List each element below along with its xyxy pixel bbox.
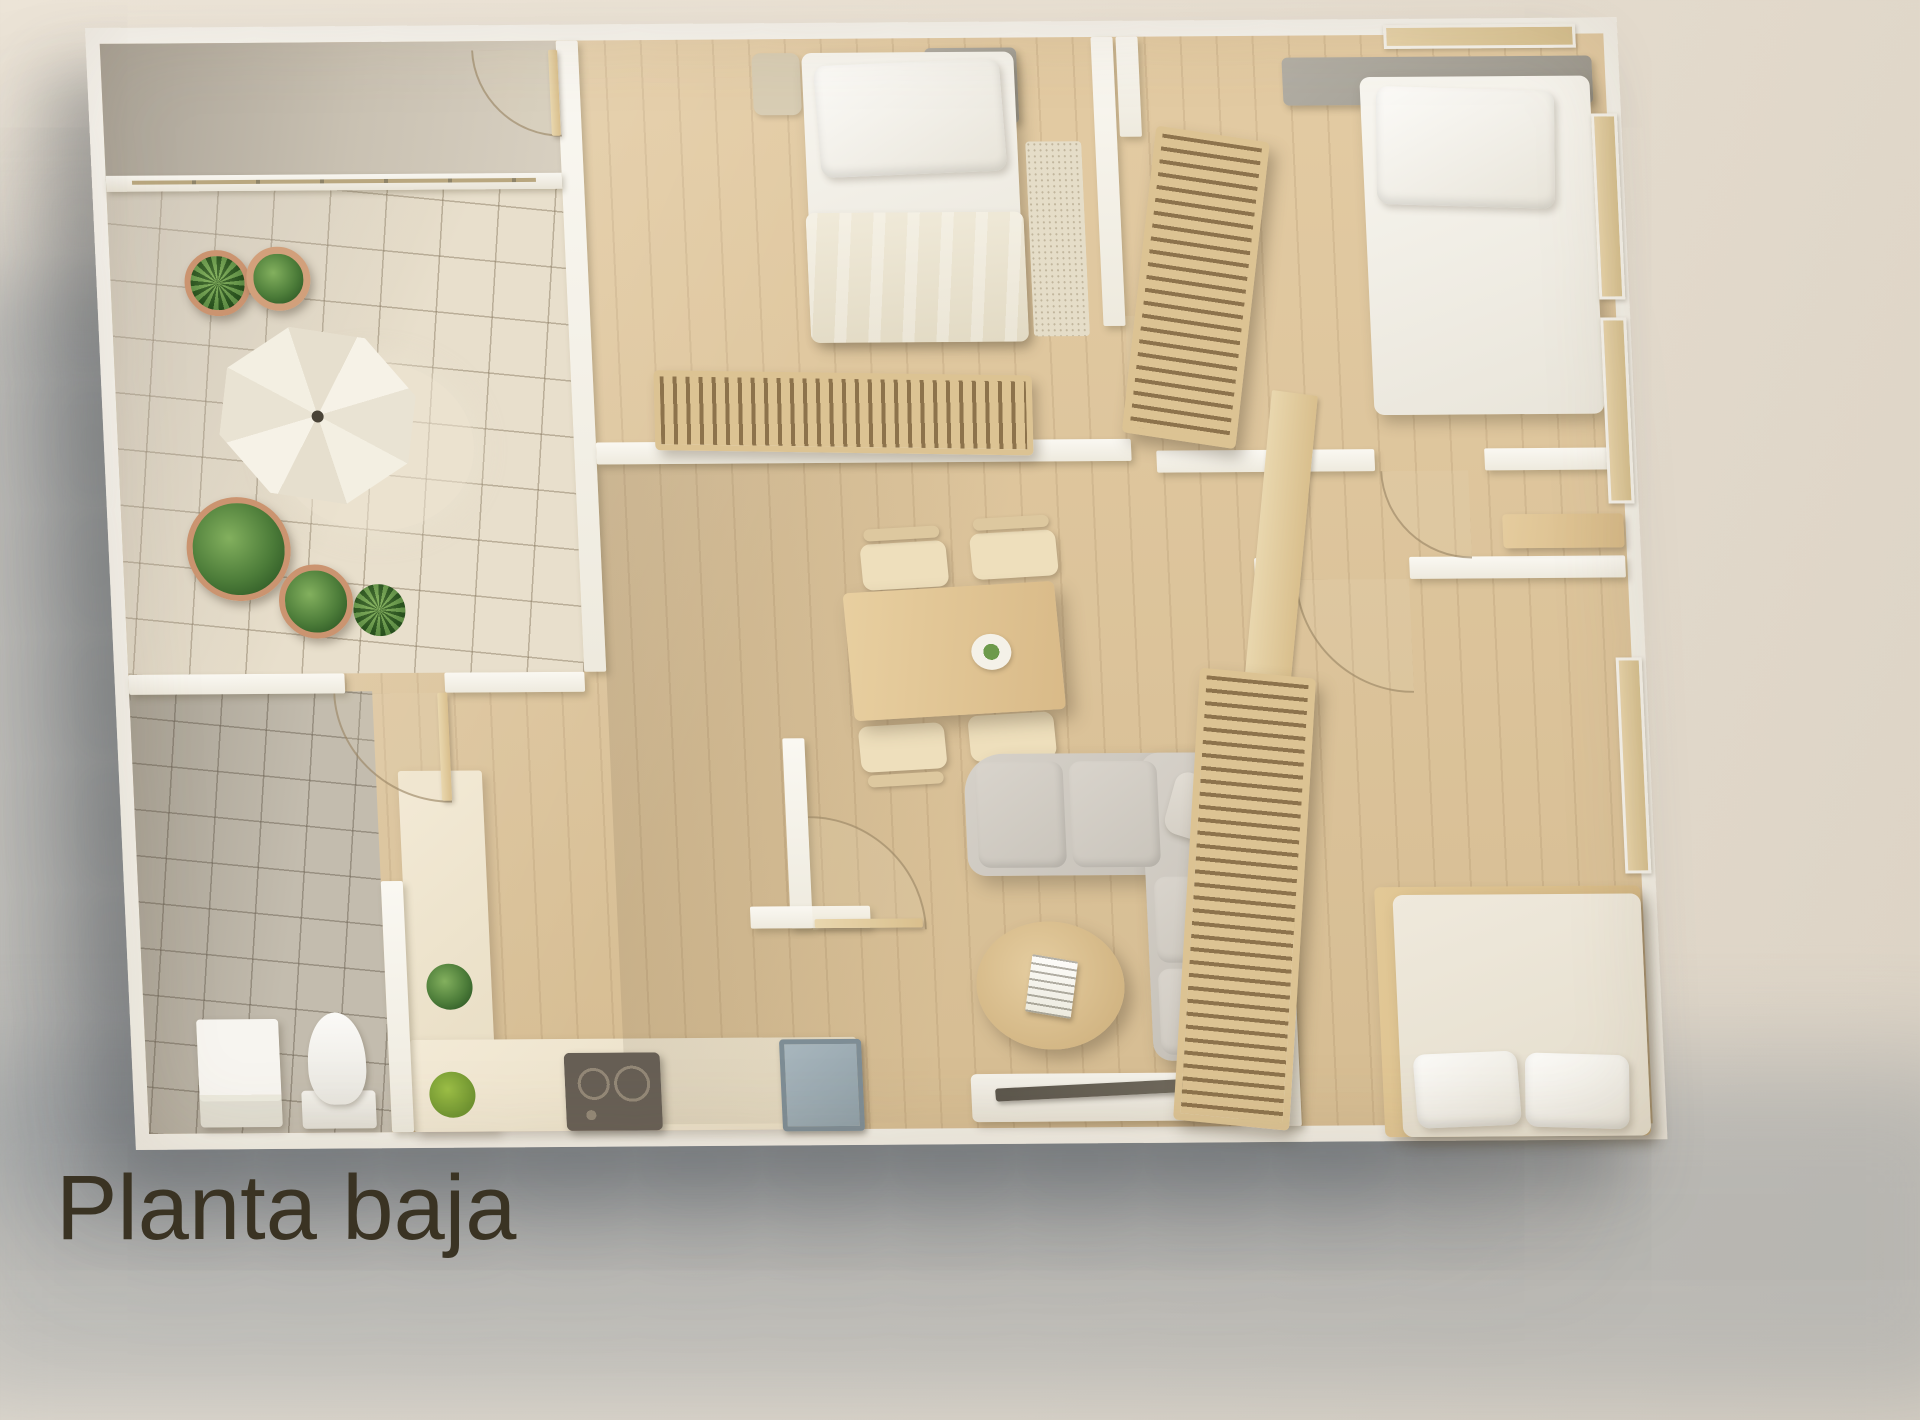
dining-chair-2 <box>969 529 1059 580</box>
bedroom1-bed-pillow <box>813 58 1008 178</box>
living-door-leaf <box>814 918 922 928</box>
bedroom3-pillow-1 <box>1412 1051 1522 1129</box>
hallway-wood-shelf <box>1502 513 1625 548</box>
kitchen-sink <box>779 1039 865 1132</box>
bedroom2-bottom-wall-right <box>1484 447 1621 470</box>
bedroom1-louvered-bench <box>653 370 1033 455</box>
cooktop <box>564 1052 664 1131</box>
dining-chair-1 <box>859 540 949 591</box>
dining-chair-3 <box>858 722 948 773</box>
page-title: Planta baja <box>56 1156 516 1261</box>
patio-bottom-wall-right <box>444 672 585 693</box>
bedroom1-rug <box>1025 141 1090 336</box>
dining-table-plant-bowl <box>971 634 1013 670</box>
scene: Planta baja <box>0 0 1920 1280</box>
sofa-cushion-2 <box>1068 761 1161 868</box>
coffee-table-magazine <box>1025 954 1078 1019</box>
bedroom3-pillow-2 <box>1525 1052 1630 1129</box>
sofa-cushion-1 <box>974 761 1067 868</box>
parasol-pole <box>311 410 324 422</box>
patio-bottom-wall-left <box>128 673 345 695</box>
bedroom2-top-window <box>1383 24 1576 49</box>
washing-machine <box>196 1019 283 1128</box>
bedroom3-top-wall-right <box>1409 555 1626 579</box>
dining-table <box>842 581 1066 721</box>
floorplan <box>85 17 1667 1150</box>
bedroom2-bed-pillow <box>1376 86 1555 209</box>
bedroom1-bed-blanket <box>805 212 1029 344</box>
bedroom2-left-wall-stub <box>1115 37 1142 137</box>
bedroom1-headboard-cushion <box>751 53 802 115</box>
